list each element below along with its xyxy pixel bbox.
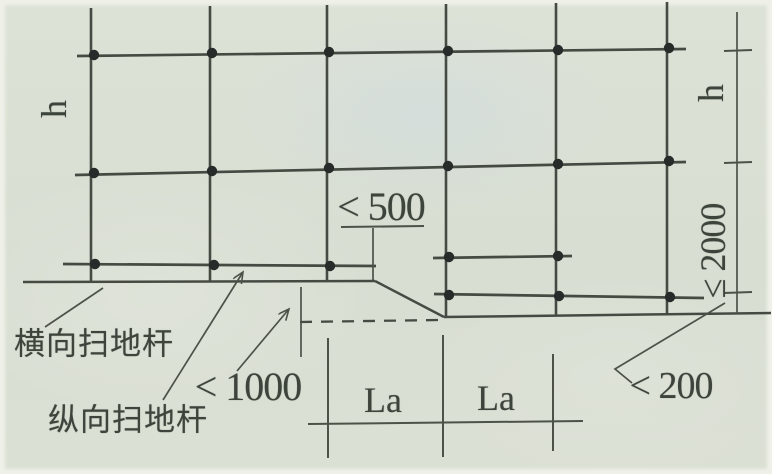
leader-dim-1000 [237, 309, 289, 371]
transverse-sweep-rod-label: 横向扫地杆 [14, 329, 174, 360]
ledger-row-top [77, 49, 686, 56]
sweep-rod-right [434, 294, 704, 298]
dim-500-label: < 500 [337, 187, 425, 227]
longitudinal-sweep-rod-label: 纵向扫地杆 [48, 405, 208, 436]
scanned-scaffold-detail-figure: h h ≤ 2000 < 500 < 1000 < 200 La La 横向扫地… [0, 0, 772, 474]
dim-200-label: < 200 [630, 367, 713, 405]
ground-profile [23, 281, 771, 322]
ledger-row-middle [75, 162, 686, 175]
span-la-label-left: La [364, 382, 402, 418]
ground-hidden-dashed-line [300, 320, 438, 322]
max-bottom-lift-label: ≤ 2000 [695, 204, 731, 299]
dim-1000-label: < 1000 [195, 367, 302, 407]
dim-500-lines [341, 226, 424, 280]
ledger-rows [63, 49, 704, 298]
story-height-label-right: h [693, 84, 729, 102]
leader-transverse-rod [45, 288, 103, 327]
story-height-label-left: h [36, 100, 72, 118]
ground-step-slope [375, 281, 444, 317]
dim-tick-top [724, 50, 752, 51]
la-span-dimension [308, 335, 583, 458]
span-la-label-right: La [477, 380, 515, 416]
dim-tick-middle [724, 162, 752, 163]
ground-line-right-low [444, 313, 771, 317]
ground-line-left-high [23, 281, 375, 282]
la-dimension-line [308, 421, 583, 424]
